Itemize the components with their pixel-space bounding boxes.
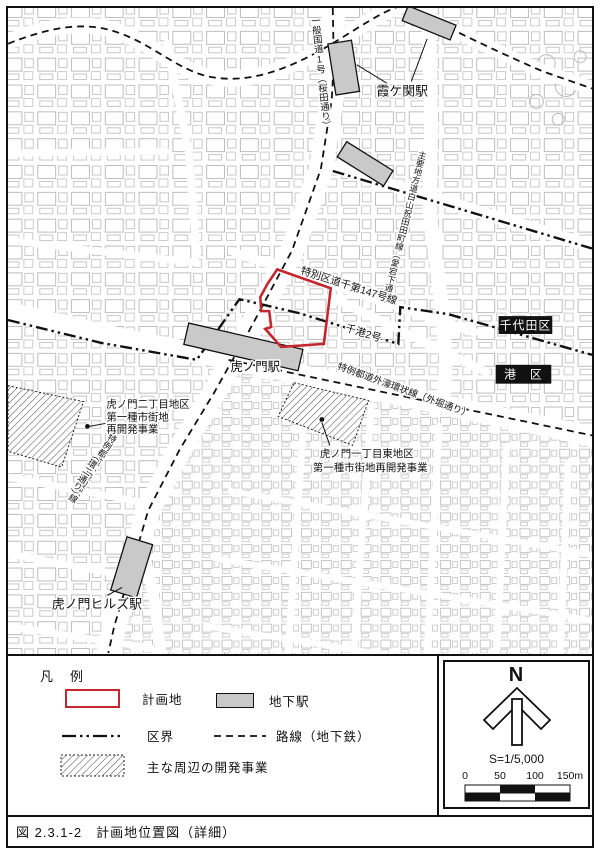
station-swatch [216, 693, 254, 708]
svg-text:100: 100 [526, 770, 544, 782]
map-area: 一般国道1号（桜田通り） 霞ケ関駅 主要地方道白山祝田田町線（愛宕下通り） 特別… [8, 8, 592, 656]
legend-item-plan-site: 計画地 [142, 689, 183, 708]
label-1chome-line2: 第一種市街地再開発事業 [313, 461, 428, 474]
label-2chome-line3: 再開発事業 [106, 422, 159, 435]
svg-text:150m: 150m [557, 770, 584, 782]
label-minato-ward: 港 区 [504, 368, 543, 382]
ward-boundary-swatch [60, 729, 126, 743]
legend-item-station: 地下駅 [269, 691, 310, 710]
document-page: 一般国道1号（桜田通り） 霞ケ関駅 主要地方道白山祝田田町線（愛宕下通り） 特別… [0, 0, 600, 855]
north-arrow-icon [445, 686, 588, 748]
development-swatch [60, 754, 126, 778]
leader-dot-1chome [319, 417, 324, 422]
legend-panel: 凡 例 計画地 区界 [8, 656, 592, 817]
label-2chome-line2: 第一種市街地 [106, 410, 169, 423]
figure-frame: 一般国道1号（桜田通り） 霞ケ関駅 主要地方道白山祝田田町線（愛宕下通り） 特別… [6, 6, 594, 848]
label-toranomon-hills-station: 虎ノ門ヒルズ駅 [52, 596, 142, 611]
label-chiyoda-ward: 千代田区 [500, 319, 552, 333]
legend-item-subway: 路線（地下鉄） [276, 726, 371, 745]
legend-item-development: 主な周辺の開発事業 [147, 757, 269, 776]
svg-text:0: 0 [462, 770, 468, 782]
svg-text:50: 50 [494, 770, 506, 782]
subway-swatch [212, 729, 268, 743]
label-2chome-line1: 虎ノ門二丁目地区 [106, 398, 189, 411]
scale-bar: 0 50 100 150m [445, 768, 588, 808]
legend-divider [437, 656, 439, 815]
legend-item-ward-boundary: 区界 [147, 726, 174, 745]
north-label: N [445, 664, 588, 687]
plan-site-swatch [65, 689, 120, 708]
city-map: 一般国道1号（桜田通り） 霞ケ関駅 主要地方道白山祝田田町線（愛宕下通り） 特別… [8, 8, 592, 654]
figure-caption: 図 2.3.1-2 計画地位置図（詳細） [8, 817, 592, 846]
scale-text: S=1/5,000 [445, 752, 588, 766]
compass-box: N S=1/5,000 0 50 100 150m [443, 660, 590, 809]
label-kasumigaseki-station: 霞ケ関駅 [376, 83, 428, 98]
leader-dot-2chome [85, 424, 90, 429]
legend-title: 凡 例 [40, 666, 85, 685]
label-1chome-line1: 虎ノ門一丁目東地区 [320, 447, 414, 460]
label-toranomon-station: 虎ノ門駅 [230, 360, 280, 374]
